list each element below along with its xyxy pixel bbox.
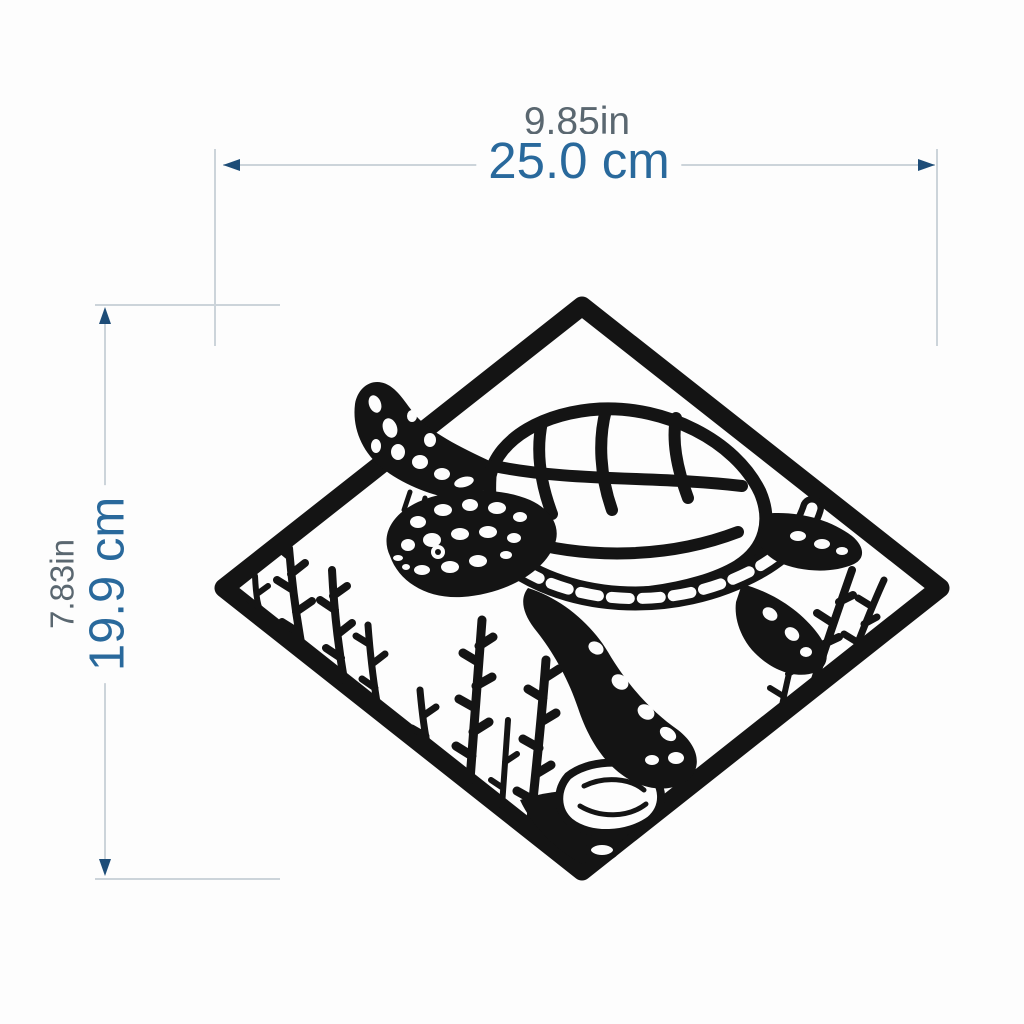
sea-turtle (354, 382, 862, 789)
wall-art-illustration (0, 0, 1024, 1024)
turtle-front-flipper-lower (523, 588, 697, 789)
product-dimension-image: 9.85in 25.0 cm 7.83in 19.9 cm (0, 0, 1024, 1024)
